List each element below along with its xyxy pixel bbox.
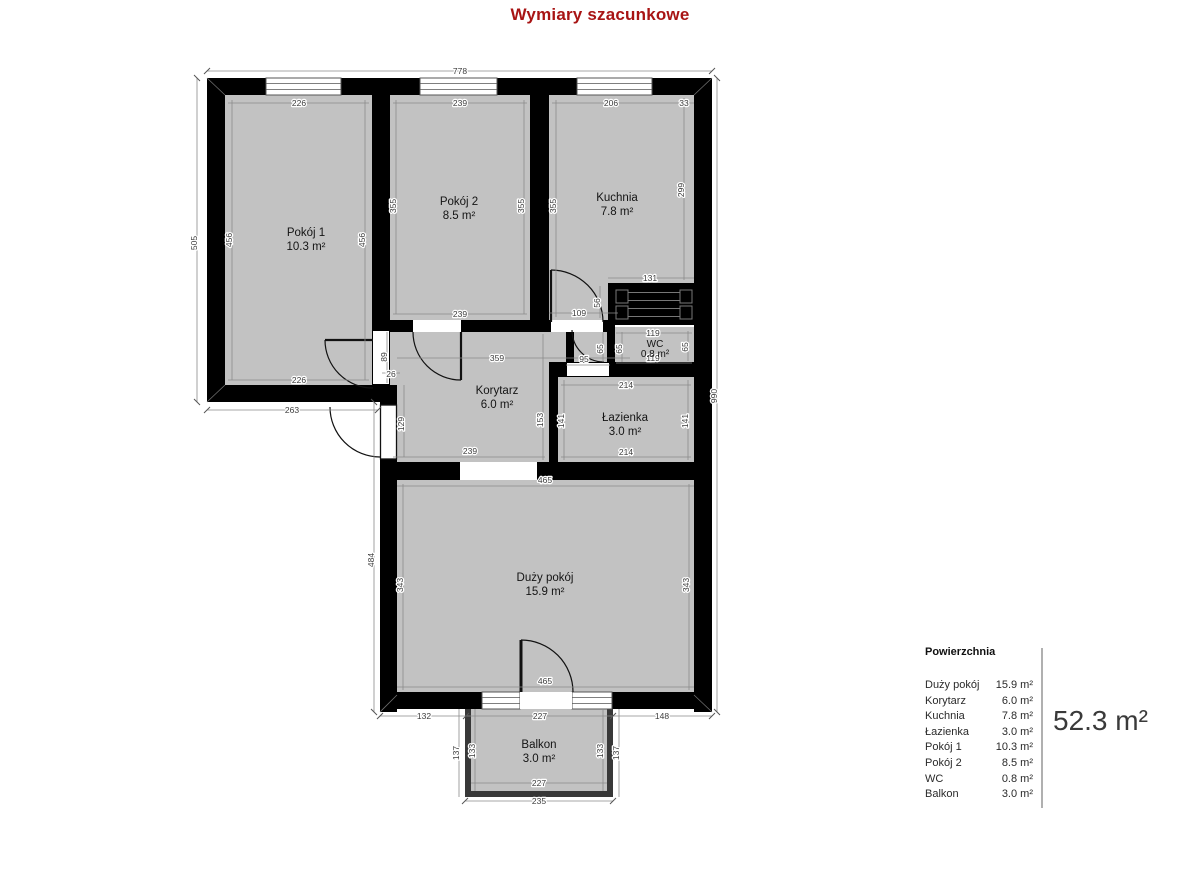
opening-kuchnia-door [551, 320, 603, 332]
legend-room-name: Duży pokój [925, 678, 979, 694]
opening-duzy-pokoj [460, 462, 537, 480]
svg-text:65: 65 [614, 344, 624, 354]
svg-text:456: 456 [224, 233, 234, 247]
opening-pokoj2-door [413, 320, 461, 332]
svg-text:343: 343 [681, 578, 691, 592]
legend-room-area: 3.0 m² [1002, 787, 1033, 803]
svg-text:133: 133 [595, 744, 605, 758]
legend-heading: Powierzchnia [925, 646, 1033, 658]
svg-text:355: 355 [516, 199, 526, 213]
svg-text:8.5 m²: 8.5 m² [443, 210, 476, 222]
svg-text:214: 214 [619, 380, 633, 390]
svg-text:226: 226 [292, 375, 306, 385]
svg-text:7.8 m²: 7.8 m² [601, 206, 634, 218]
svg-text:10.3 m²: 10.3 m² [287, 241, 326, 253]
svg-text:263: 263 [285, 405, 299, 415]
svg-text:119: 119 [646, 328, 660, 338]
legend-row: WC 0.8 m² [925, 772, 1033, 788]
svg-text:131: 131 [643, 273, 657, 283]
svg-text:Kuchnia: Kuchnia [596, 192, 638, 204]
window-pokoj2 [420, 78, 497, 95]
legend-room-name: WC [925, 772, 943, 788]
svg-text:65: 65 [680, 342, 690, 352]
svg-text:505: 505 [189, 236, 199, 250]
legend-row: Duży pokój 15.9 m² [925, 678, 1033, 694]
svg-text:153: 153 [535, 413, 545, 427]
svg-text:226: 226 [292, 98, 306, 108]
svg-text:484: 484 [366, 553, 376, 567]
svg-text:33: 33 [679, 98, 689, 108]
svg-text:56: 56 [592, 298, 602, 308]
svg-text:235: 235 [532, 796, 546, 806]
svg-text:Duży pokój: Duży pokój [517, 572, 574, 584]
room-pokoj1 [225, 95, 372, 385]
svg-text:26: 26 [386, 369, 396, 379]
legend-row: Balkon 3.0 m² [925, 787, 1033, 803]
svg-text:778: 778 [453, 66, 467, 76]
svg-text:206: 206 [604, 98, 618, 108]
total-area: 52.3 m² [1053, 705, 1148, 737]
svg-text:Korytarz: Korytarz [476, 385, 519, 397]
svg-text:355: 355 [388, 199, 398, 213]
svg-text:89: 89 [379, 352, 389, 362]
legend-room-name: Balkon [925, 787, 959, 803]
svg-text:343: 343 [395, 578, 405, 592]
legend-room-area: 8.5 m² [1002, 756, 1033, 772]
svg-text:148: 148 [655, 711, 669, 721]
opening-balkon-door [520, 692, 572, 709]
svg-text:109: 109 [572, 308, 586, 318]
svg-text:132: 132 [417, 711, 431, 721]
svg-text:3.0 m²: 3.0 m² [523, 753, 556, 765]
svg-text:456: 456 [357, 233, 367, 247]
legend-row: Łazienka 3.0 m² [925, 725, 1033, 741]
legend-room-area: 3.0 m² [1002, 725, 1033, 741]
legend-room-area: 15.9 m² [996, 678, 1033, 694]
legend-row: Korytarz 6.0 m² [925, 694, 1033, 710]
legend-room-name: Korytarz [925, 694, 966, 710]
legend: Powierzchnia Duży pokój 15.9 m² Korytarz… [925, 646, 1033, 803]
svg-text:65: 65 [595, 344, 605, 354]
svg-text:239: 239 [463, 446, 477, 456]
svg-text:3.0 m²: 3.0 m² [609, 426, 642, 438]
svg-text:Łazienka: Łazienka [602, 412, 649, 424]
legend-room-name: Łazienka [925, 725, 969, 741]
legend-row: Pokój 2 8.5 m² [925, 756, 1033, 772]
svg-text:15.9 m²: 15.9 m² [526, 586, 565, 598]
svg-text:465: 465 [538, 475, 552, 485]
svg-text:137: 137 [451, 746, 461, 760]
svg-text:0.8 m²: 0.8 m² [641, 349, 670, 360]
svg-text:129: 129 [396, 417, 406, 431]
window-pokoj1 [266, 78, 341, 95]
svg-text:227: 227 [532, 778, 546, 788]
legend-room-name: Kuchnia [925, 709, 965, 725]
legend-row: Kuchnia 7.8 m² [925, 709, 1033, 725]
svg-text:Balkon: Balkon [521, 739, 556, 751]
legend-room-area: 7.8 m² [1002, 709, 1033, 725]
svg-text:141: 141 [556, 414, 566, 428]
legend-room-area: 10.3 m² [996, 740, 1033, 756]
window-balkon-right [572, 692, 612, 709]
legend-room-area: 6.0 m² [1002, 694, 1033, 710]
legend-row: Pokój 1 10.3 m² [925, 740, 1033, 756]
legend-divider [1041, 648, 1043, 808]
legend-room-area: 0.8 m² [1002, 772, 1033, 788]
svg-text:239: 239 [453, 98, 467, 108]
svg-text:355: 355 [548, 199, 558, 213]
svg-text:Pokój 2: Pokój 2 [440, 196, 478, 208]
window-kuchnia [577, 78, 652, 95]
legend-room-name: Pokój 1 [925, 740, 962, 756]
svg-text:227: 227 [533, 711, 547, 721]
svg-text:359: 359 [490, 353, 504, 363]
svg-text:214: 214 [619, 447, 633, 457]
svg-text:299: 299 [676, 183, 686, 197]
svg-text:990: 990 [709, 389, 719, 403]
svg-text:95: 95 [579, 354, 589, 364]
svg-text:6.0 m²: 6.0 m² [481, 399, 514, 411]
svg-text:239: 239 [453, 309, 467, 319]
entry-door-leaf [381, 405, 397, 459]
window-balkon-left [482, 692, 520, 709]
svg-text:Pokój 1: Pokój 1 [287, 227, 325, 239]
svg-text:137: 137 [611, 746, 621, 760]
door-entry [330, 407, 380, 457]
svg-text:141: 141 [680, 414, 690, 428]
legend-room-name: Pokój 2 [925, 756, 962, 772]
svg-text:465: 465 [538, 676, 552, 686]
svg-text:133: 133 [467, 744, 477, 758]
